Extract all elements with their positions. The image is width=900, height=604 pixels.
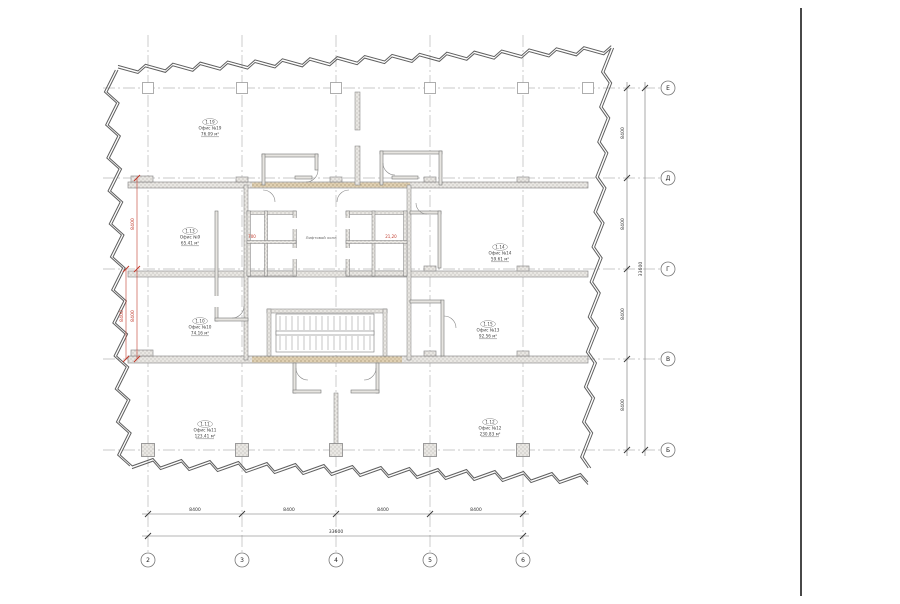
door-arc-lobby-right	[337, 190, 349, 202]
room-number: 1.11	[200, 421, 210, 426]
dim-bottom-2: 8400	[283, 507, 295, 513]
room-name: Офис №10	[189, 325, 212, 330]
room-label-office-10: 1.10 Офис №10 74.16 м²	[189, 318, 212, 336]
room-number: 1.15	[483, 321, 493, 326]
dim-bottom-1: 8400	[189, 507, 201, 513]
elevator-bank-left	[247, 211, 299, 276]
shaft-wall-upper	[355, 92, 360, 130]
room-area: 123.41 м²	[195, 434, 216, 439]
grid-bubble-row-v-label: В	[666, 356, 670, 363]
grid-bubble-col-4: 4	[329, 553, 343, 567]
grid-bubbles-cols: 2 3 4 5 6	[141, 553, 530, 567]
room-label-office-11: 1.11 Офис №11 123.41 м²	[194, 421, 217, 439]
dimension-chain-bottom: 8400 8400 8400 8400 33600	[142, 507, 529, 539]
stairwell	[267, 309, 387, 356]
grid-bubble-col-4-label: 4	[334, 557, 338, 564]
room-name: Офис №12	[479, 426, 502, 431]
room-label-office-13: 1.15 Офис №13 92.56 м²	[477, 321, 500, 339]
room-number: 1.19	[205, 119, 215, 124]
grid-bubble-col-6-label: 6	[521, 557, 525, 564]
shaft-wall-lower	[355, 146, 360, 185]
room-area: 65.41 м²	[181, 241, 199, 246]
room-number: 1.14	[495, 244, 505, 249]
vestibule-upper-left	[262, 154, 318, 185]
structural-grid-lines	[103, 35, 661, 553]
dim-bottom-total: 33600	[329, 529, 344, 535]
room-name: Офис №11	[194, 428, 217, 433]
dim-bottom-4: 8400	[470, 507, 482, 513]
dim-left-red-2: 8400	[130, 310, 136, 322]
dim-right-total: 33600	[638, 262, 644, 277]
dim-left-red-extra: 8400	[119, 310, 125, 322]
grid-bubble-row-d-label: Д	[666, 175, 671, 182]
grid-bubble-col-3-label: 3	[240, 557, 244, 564]
room-area: 59.61 м²	[491, 257, 509, 262]
grid-bubble-col-5: 5	[423, 553, 437, 567]
room-name: Офис №14	[489, 251, 512, 256]
room-number: 1.13	[185, 228, 195, 233]
room-label-office-12: 1.12 Офис №12 230.83 м²	[479, 419, 502, 437]
room-number: 1.10	[195, 318, 205, 323]
grid-bubble-row-e: Е	[661, 81, 675, 95]
room-area: 76.09 м²	[201, 132, 219, 137]
grid-bubble-row-b: Б	[661, 443, 675, 457]
grid-bubble-col-5-label: 5	[428, 557, 432, 564]
lift-lobby-label: Лифтовой холл	[306, 235, 337, 240]
room-label-office-19: 1.19 Офис №19 76.09 м²	[199, 119, 222, 137]
room-area: 74.16 м²	[191, 331, 209, 336]
grid-bubble-row-b-label: Б	[666, 447, 670, 454]
grid-bubble-col-3: 3	[235, 553, 249, 567]
grid-bubble-row-v: В	[661, 352, 675, 366]
elevator-bank-right	[345, 211, 408, 276]
room-right-of-stair	[410, 300, 456, 356]
dim-bottom-3: 8400	[377, 507, 389, 513]
red-mark-2120: 21,20	[385, 234, 397, 239]
room-right-of-elevators	[410, 203, 441, 268]
door-arc-lobby-left	[263, 190, 275, 202]
partition-left-offices	[214, 211, 248, 321]
room-area: 230.83 м²	[480, 432, 501, 437]
room-name: Офис №13	[477, 328, 500, 333]
grid-bubbles-rows: Е Д Г В Б	[661, 81, 675, 457]
dim-right-3: 8400	[620, 308, 626, 320]
dim-right-1: 8400	[620, 127, 626, 139]
grid-bubble-col-2-label: 2	[146, 557, 150, 564]
building-core	[214, 92, 456, 445]
room-name: Офис №19	[199, 126, 222, 131]
dim-left-red-1: 8400	[130, 218, 136, 230]
dim-right-4: 8400	[620, 399, 626, 411]
room-area: 92.56 м²	[479, 334, 497, 339]
red-dim-700: 700	[248, 234, 256, 239]
grid-bubble-row-g: Г	[661, 262, 675, 276]
room-label-office-14: 1.14 Офис №14 59.61 м²	[489, 244, 512, 262]
room-labels: 1.19 Офис №19 76.09 м² 1.13 Офис №9 65.4…	[180, 119, 512, 439]
room-label-office-9: 1.13 Офис №9 65.41 м²	[180, 228, 201, 246]
room-number: 1.12	[485, 419, 495, 424]
floor-plan-drawing: 8400 8400 8400 8400 33600 8400 8400 8400…	[0, 0, 900, 604]
grid-bubble-col-2: 2	[141, 553, 155, 567]
grid-bubble-row-d: Д	[661, 171, 675, 185]
grid-bubble-row-g-label: Г	[666, 266, 670, 273]
grid-bubble-col-6: 6	[516, 553, 530, 567]
room-name: Офис №9	[180, 235, 201, 240]
grid-bubble-row-e-label: Е	[666, 85, 670, 92]
dim-right-2: 8400	[620, 218, 626, 230]
